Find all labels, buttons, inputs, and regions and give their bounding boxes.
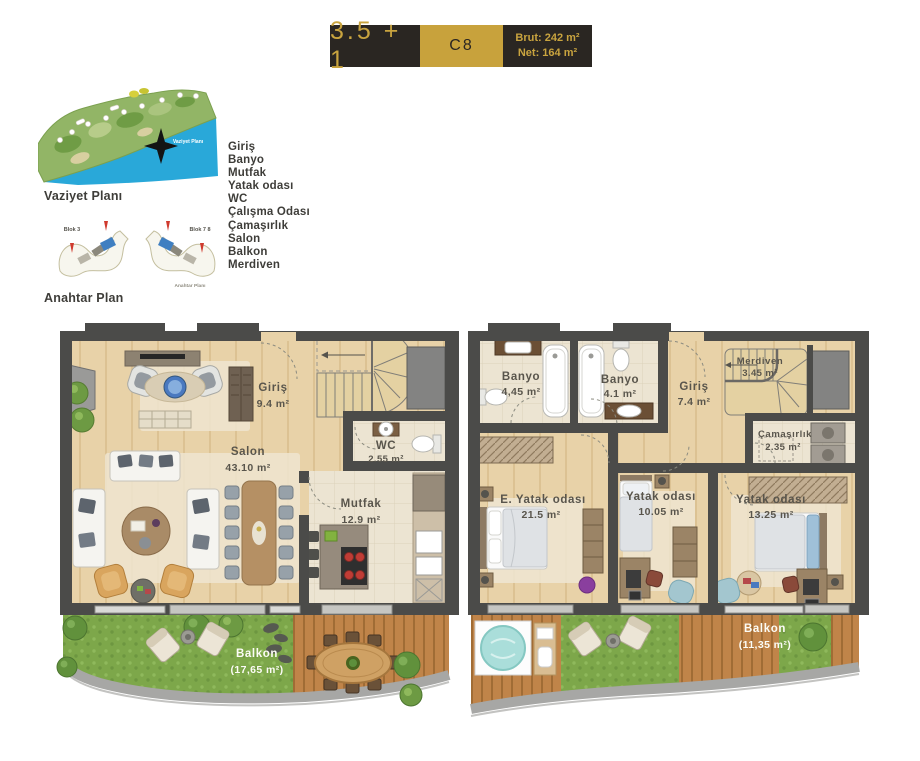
floor-plan-lower: Balkon (17,65 m²) (55, 323, 460, 723)
room-label-salon: Salon (231, 446, 265, 458)
site-plan-thumbnail: Vaziyet Planı (38, 82, 228, 190)
legend-item: Çamaşırlık (228, 220, 310, 233)
room-label-banyo2: Banyo (601, 374, 639, 386)
room-area-merdiven: 3.45 m² (742, 368, 778, 379)
windows (95, 605, 392, 614)
legend-item: Yatak odası (228, 180, 310, 193)
room-label-giris: Giriş (258, 382, 287, 394)
windows (488, 605, 849, 613)
unit-marker-icon (104, 221, 108, 231)
net-area-label: Net: 164 m² (518, 46, 577, 61)
side-table (606, 634, 620, 648)
kitchen-counter (413, 473, 445, 603)
legend-item: Balkon (228, 246, 310, 259)
shaft (811, 351, 849, 409)
legend-item: Mutfak (228, 167, 310, 180)
coffee-table (122, 507, 170, 555)
jacuzzi (475, 621, 531, 675)
wardrobe (477, 437, 553, 463)
unit-type-label: 3.5 + 1 (330, 17, 420, 75)
legend-item: Merdiven (228, 259, 310, 272)
key-plan: Blok 3 Blok 7 8 Anahtar Planı (48, 213, 226, 291)
entry-door-opening (669, 332, 704, 341)
room-area-balkon2: (11,35 m²) (739, 639, 791, 651)
room-legend: Giriş Banyo Mutfak Yatak odası WC Çalışm… (228, 141, 310, 272)
room-area-yatak2: 13.25 m² (748, 509, 793, 521)
room-area-giris: 9.4 m² (257, 398, 290, 410)
room-area-balkon: (17,65 m²) (230, 664, 283, 676)
room-label-merdiven: Merdiven (737, 356, 784, 367)
side-table (181, 630, 195, 644)
unit-areas-badge: Brut: 242 m² Net: 164 m² (503, 25, 592, 67)
site-plan-inner-label: Vaziyet Planı (173, 139, 204, 145)
room-label-mutfak: Mutfak (341, 498, 382, 510)
room-label-yatak2: Yatak odası (736, 494, 806, 506)
balcony-upper: Balkon (11,35 m²) (471, 615, 859, 716)
cabinet (673, 527, 697, 577)
garden-trees (799, 623, 827, 651)
room-label-balkon: Balkon (236, 648, 278, 660)
brochure-page: 3.5 + 1 C8 Brut: 242 m² Net: 164 m² (0, 0, 920, 761)
brut-area-label: Brut: 242 m² (515, 31, 579, 46)
room-area-giris2: 7.4 m² (678, 396, 711, 408)
room-label-yatak1: Yatak odası (626, 491, 696, 503)
legend-item: Giriş (228, 141, 310, 154)
tv-console (125, 351, 200, 366)
room-area-yatak1: 10.05 m² (638, 506, 683, 518)
room-label-eyatak: E. Yatak odası (500, 494, 586, 506)
room-area-banyo1: 4,45 m² (502, 386, 541, 398)
unit-marker-icon (166, 221, 170, 231)
sofa (187, 489, 219, 569)
room-label-banyo1: Banyo (502, 371, 540, 383)
entry-door-opening (261, 332, 296, 341)
round-side-table (145, 372, 205, 402)
towel-bench (534, 623, 556, 675)
sofa (73, 489, 105, 567)
key-plan-caption: Anahtar Plan (44, 291, 124, 305)
room-label-camasirlik: Çamaşırlık (758, 429, 812, 440)
unit-code-badge: C8 (420, 25, 503, 67)
legend-item: WC (228, 193, 310, 206)
unit-type-badge: 3.5 + 1 (330, 25, 420, 67)
legend-item: Çalışma Odası (228, 206, 310, 219)
room-area-mutfak: 12.9 m² (342, 514, 381, 526)
key-plan-inner-label: Anahtar Planı (175, 283, 206, 289)
room-label-wc: WC (376, 440, 396, 452)
legend-item: Salon (228, 233, 310, 246)
single-bed (755, 513, 827, 571)
room-area-camasirlik: 2.35 m² (765, 442, 801, 453)
balcony-lower: Balkon (17,65 m²) (57, 613, 453, 707)
block-right-label: Blok 7 8 (189, 227, 210, 233)
room-label-giris2: Giriş (679, 381, 708, 393)
unit-lower: Giriş 9.4 m² Salon 43.10 m² WC 2.55 m² M… (60, 323, 459, 615)
room-area-banyo2: 4.1 m² (604, 388, 637, 400)
wardrobe (229, 367, 253, 421)
pouf (579, 577, 595, 593)
unit-upper: Banyo 4,45 m² Banyo 4.1 m² Giriş 7.4 m² … (468, 323, 869, 615)
block-left-label: Blok 3 (64, 227, 81, 233)
legend-item: Banyo (228, 154, 310, 167)
unit-code-label: C8 (449, 37, 473, 55)
unit-header: 3.5 + 1 C8 Brut: 242 m² Net: 164 m² (330, 25, 592, 67)
room-label-balkon2: Balkon (744, 623, 786, 635)
dining-table (225, 481, 293, 585)
shaft (407, 347, 445, 409)
side-table (131, 579, 155, 603)
room-area-salon: 43.10 m² (225, 462, 270, 474)
floor-plan-upper: Balkon (11,35 m²) (463, 323, 875, 723)
sofa (110, 451, 180, 481)
room-area-wc: 2.55 m² (368, 454, 404, 465)
room-area-eyatak: 21.5 m² (522, 509, 561, 521)
site-plan-caption: Vaziyet Planı (44, 189, 122, 203)
bench (139, 411, 191, 428)
